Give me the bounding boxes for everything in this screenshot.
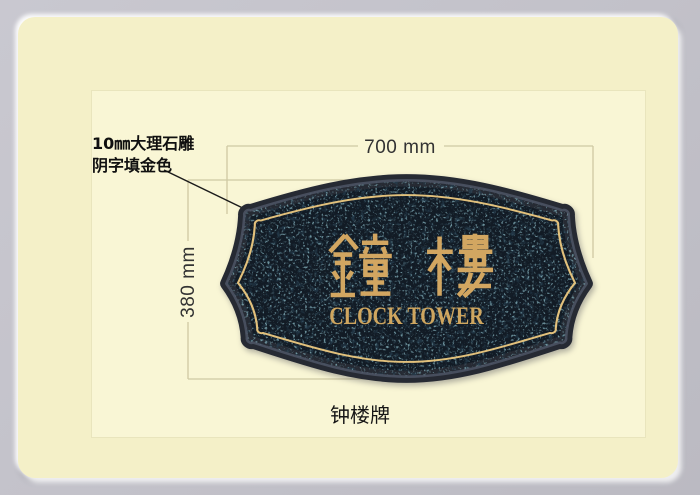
height-dimension-label: 380 mm — [178, 235, 198, 329]
width-dimension-label: 700 mm — [340, 137, 460, 159]
material-annotation: 10㎜大理石雕 阴字填金色 — [92, 133, 212, 177]
sheet-caption: 钟楼牌 — [300, 399, 420, 428]
material-annotation-line1: 10㎜大理石雕 — [92, 133, 212, 155]
plaque-svg: CLOCK TOWER — [216, 170, 597, 387]
plaque-subtitle: CLOCK TOWER — [329, 303, 484, 330]
design-sheet: { "annotation": { "line1": "10㎜大理石雕", "l… — [0, 0, 700, 495]
clock-tower-plaque: CLOCK TOWER — [216, 170, 597, 387]
material-annotation-line2: 阴字填金色 — [92, 155, 212, 177]
